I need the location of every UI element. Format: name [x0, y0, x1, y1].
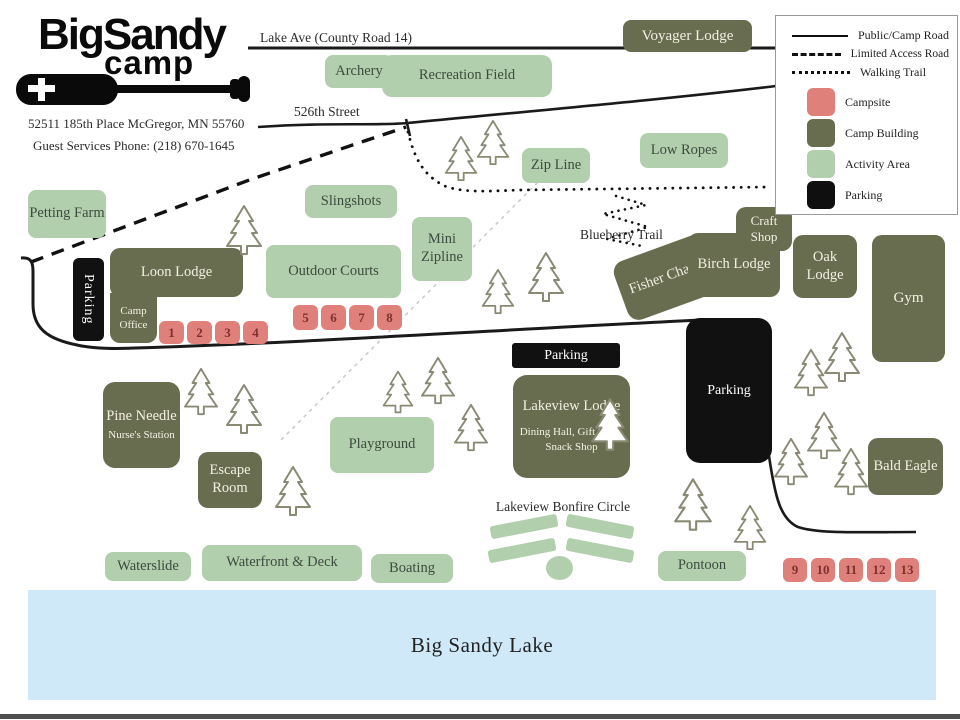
activity-waterslide: Waterslide — [105, 552, 191, 581]
pine-tree-icon — [224, 382, 264, 436]
activity-recreation-field: Recreation Field — [382, 55, 552, 97]
blueberry-trail-label: Blueberry Trail — [580, 227, 663, 243]
building-pine-needle: Pine Needle Nurse's Station — [103, 382, 180, 468]
legend-label: Activity Area — [845, 157, 910, 172]
pine-tree-icon — [475, 118, 511, 167]
legend-label: Camp Building — [845, 126, 919, 141]
legend-camp-building: Camp Building — [792, 119, 949, 147]
pine-tree-icon — [589, 396, 631, 453]
activity-swatch-icon — [807, 150, 835, 178]
logo-big: Big — [38, 10, 103, 59]
legend-label: Campsite — [845, 95, 890, 110]
activity-petting-farm: Petting Farm — [28, 190, 106, 238]
legend-label: Walking Trail — [860, 65, 926, 80]
campsites-1-4: 1 2 3 4 — [159, 321, 271, 344]
building-bald-eagle: Bald Eagle — [868, 438, 943, 495]
camp-office-label: Camp Office — [110, 304, 157, 333]
phone-text: Guest Services Phone: (218) 670-1645 — [33, 138, 234, 154]
solid-line-icon — [792, 35, 848, 37]
campsite-10: 10 — [811, 558, 835, 582]
parking-swatch-icon — [807, 181, 835, 209]
activity-boating: Boating — [371, 554, 453, 583]
pine-needle-label: Pine Needle — [106, 408, 176, 426]
street-526-label: 526th Street — [294, 104, 360, 120]
building-escape-room: Escape Room — [198, 452, 262, 508]
campsite-1: 1 — [159, 321, 184, 344]
building-voyager-lodge: Voyager Lodge — [623, 20, 752, 52]
building-camp-office: Camp Office — [110, 293, 157, 343]
legend-parking: Parking — [792, 181, 949, 209]
pine-tree-icon — [182, 366, 220, 417]
campsites-5-8: 5 6 7 8 — [293, 305, 405, 330]
campsites-9-13: 9 10 11 12 13 — [783, 558, 923, 582]
activity-mini-zipline: Mini Zipline — [412, 217, 472, 281]
activity-archery: Archery — [325, 55, 393, 88]
lake-ave-label: Lake Ave (County Road 14) — [260, 30, 412, 46]
legend-label: Parking — [845, 188, 882, 203]
legend-activity-area: Activity Area — [792, 150, 949, 178]
pine-tree-icon — [452, 402, 490, 453]
activity-slingshots: Slingshots — [305, 185, 397, 218]
campsite-3: 3 — [215, 321, 240, 344]
parking-west: Parking — [73, 258, 104, 341]
legend-campsite: Campsite — [792, 88, 949, 116]
pine-tree-icon — [273, 464, 313, 518]
legend-label: Public/Camp Road — [858, 28, 949, 43]
pine-tree-icon — [419, 355, 457, 406]
activity-zip-line: Zip Line — [522, 148, 590, 183]
big-sandy-lake: Big Sandy Lake — [28, 590, 936, 700]
campsite-11: 11 — [839, 558, 863, 582]
legend-label: Limited Access Road — [851, 48, 949, 60]
campsite-swatch-icon — [807, 88, 835, 116]
bonfire-circle-label: Lakeview Bonfire Circle — [468, 499, 658, 515]
legend-road-dashed: Limited Access Road — [792, 48, 949, 60]
pine-tree-icon — [772, 436, 810, 487]
parking-west-label: Parking — [80, 274, 97, 325]
activity-playground: Playground — [330, 417, 434, 473]
activity-low-ropes: Low Ropes — [640, 133, 728, 168]
dotted-line-icon — [792, 71, 850, 74]
building-swatch-icon — [807, 119, 835, 147]
camp-map: BigSandy camp 52511 185th Place McGregor… — [0, 0, 960, 720]
nurses-station-label: Nurse's Station — [108, 429, 174, 442]
pine-tree-icon — [832, 446, 870, 497]
activity-outdoor-courts: Outdoor Courts — [266, 245, 401, 298]
pine-tree-icon — [526, 250, 566, 304]
pine-tree-icon — [732, 503, 768, 552]
campsite-4: 4 — [243, 321, 268, 344]
campsite-12: 12 — [867, 558, 891, 582]
campsite-2: 2 — [187, 321, 212, 344]
window-bottom-bar — [0, 714, 960, 719]
parking-east-lot: Parking — [686, 318, 772, 463]
legend-walking-trail: Walking Trail — [792, 65, 949, 80]
legend-road-solid: Public/Camp Road — [792, 28, 949, 43]
parking-central: Parking — [512, 343, 620, 368]
map-legend: Public/Camp Road Limited Access Road Wal… — [775, 15, 958, 215]
pine-tree-icon — [381, 369, 415, 415]
pine-tree-icon — [822, 330, 862, 384]
pine-tree-icon — [672, 476, 714, 533]
paddle-icon — [14, 70, 264, 110]
building-gym: Gym — [872, 235, 945, 362]
campsite-9: 9 — [783, 558, 807, 582]
address-text: 52511 185th Place McGregor, MN 55760 — [28, 116, 244, 132]
campsite-5: 5 — [293, 305, 318, 330]
dashed-line-icon — [792, 53, 841, 56]
firepit-icon — [546, 556, 573, 580]
building-oak-lodge: Oak Lodge — [793, 235, 857, 298]
pine-tree-icon — [480, 267, 516, 316]
campsite-7: 7 — [349, 305, 374, 330]
campsite-13: 13 — [895, 558, 919, 582]
activity-pontoon: Pontoon — [658, 551, 746, 581]
campsite-6: 6 — [321, 305, 346, 330]
activity-waterfront-deck: Waterfront & Deck — [202, 545, 362, 581]
pine-tree-icon — [224, 203, 264, 257]
campsite-8: 8 — [377, 305, 402, 330]
pine-tree-icon — [443, 134, 479, 183]
